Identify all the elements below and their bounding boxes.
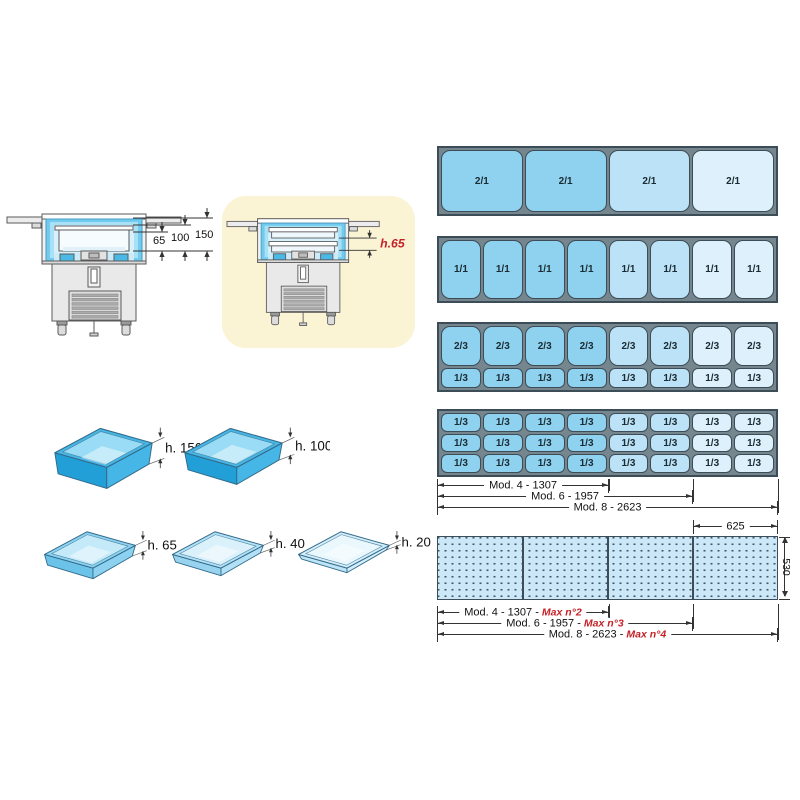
gn-pan-cell: 1/1 (483, 240, 523, 299)
gn-pan-size-label: 1/3 (663, 373, 677, 384)
gn-pan-size-label: 1/3 (538, 458, 552, 469)
gn-pan-size-label: 2/1 (475, 176, 489, 187)
dimension-arrow (438, 505, 444, 509)
pan-isometric-drawing: h. 65 (40, 521, 180, 594)
worktop-divider (522, 537, 524, 599)
gn-pan-cell: 2/1 (609, 150, 691, 212)
gn-pan-cell: 1/3 (483, 413, 523, 432)
gn-pan-size-label: 1/1 (496, 264, 510, 275)
extension-tick (693, 604, 694, 629)
dimension-text: Mod. 8 - 2623 - (549, 629, 624, 641)
worktop-depth-tick (779, 537, 790, 538)
gn-pan-size-label: 1/3 (496, 417, 510, 428)
gn-row-1-3: 1/31/31/31/31/31/31/31/31/31/31/31/31/31… (437, 409, 778, 477)
gn-pan-cell: 1/3 (441, 434, 481, 453)
gn-band: 2/12/12/12/1 (441, 150, 774, 212)
pan-height-label: h. 20 (401, 535, 430, 550)
pan-isometric-drawing: h. 40 (168, 521, 308, 594)
extension-tick (609, 604, 610, 618)
dimension-arrow (438, 610, 444, 614)
gn-pan-cell: 1/3 (441, 413, 481, 432)
gn-pan-cell: 1/3 (525, 434, 565, 453)
worktop-depth-label: 530 (780, 558, 792, 576)
gn-pan-cell: 1/3 (483, 368, 523, 388)
gn-pan-cell: 2/1 (525, 150, 607, 212)
gn-band: 2/32/32/32/32/32/32/32/3 (441, 326, 774, 366)
gn-pan-cell: 1/1 (609, 240, 649, 299)
gn-pan-cell: 1/3 (650, 454, 690, 473)
pan-isometric-drawing: h. 20 (294, 521, 434, 594)
pan-height-illustration: h. 65 (40, 521, 180, 594)
gn-pan-size-label: 1/3 (580, 373, 594, 384)
worktop-section-width-dimension: 625 (693, 521, 778, 533)
gn-pan-size-label: 1/3 (705, 417, 719, 428)
gn-pan-cell: 1/3 (609, 454, 649, 473)
extension-tick (778, 479, 779, 513)
gn-pan-cell: 1/3 (734, 368, 774, 388)
gn-pan-size-label: 2/3 (580, 341, 594, 352)
gn-pan-size-label: 2/3 (621, 341, 635, 352)
module-dimension-3: Mod. 8 - 2623 (437, 502, 778, 514)
gn-pan-size-label: 1/3 (705, 438, 719, 449)
gn-pan-cell: 1/3 (609, 368, 649, 388)
gn-row-1-1: 1/11/11/11/11/11/11/11/1 (437, 236, 778, 303)
dimension-arrow (438, 632, 444, 636)
gn-pan-cell: 2/3 (525, 326, 565, 366)
dimension-arrow (602, 483, 608, 487)
pan-height-label: h. 100 (295, 438, 330, 453)
highlight-depth-label: h.65 (380, 237, 405, 251)
gn-pan-cell: 1/3 (650, 368, 690, 388)
extension-tick (778, 604, 779, 640)
gn-pan-size-label: 1/3 (580, 458, 594, 469)
gn-pan-size-label: 1/3 (705, 458, 719, 469)
gn-pan-size-label: 1/3 (621, 373, 635, 384)
worktop-depth-tick (779, 599, 790, 600)
gn-pan-size-label: 2/3 (454, 341, 468, 352)
gn-pan-size-label: 2/3 (663, 341, 677, 352)
gn-band: 1/31/31/31/31/31/31/31/3 (441, 368, 774, 388)
gn-pan-cell: 1/1 (650, 240, 690, 299)
gn-pan-cell: 1/3 (525, 368, 565, 388)
gn-pan-size-label: 1/3 (496, 438, 510, 449)
gn-pan-size-label: 1/3 (663, 438, 677, 449)
gn-band: 1/31/31/31/31/31/31/31/3 (441, 413, 774, 432)
dimension-arrow (686, 621, 692, 625)
gn-pan-cell: 1/3 (692, 413, 732, 432)
dimension-text: Mod. 8 - 2623 (574, 502, 642, 514)
section-view-highlighted: h.65 (225, 203, 411, 329)
gn-pan-cell: 1/3 (650, 434, 690, 453)
gn-pan-size-label: 1/3 (621, 417, 635, 428)
dimension-arrow (771, 632, 777, 636)
gn-pan-size-label: 1/3 (454, 417, 468, 428)
worktop-depth-arrow-down (782, 591, 788, 597)
gn-pan-cell: 2/3 (734, 326, 774, 366)
dimension-label: Mod. 8 - 2623 (569, 502, 647, 514)
gn-pan-cell: 1/3 (734, 434, 774, 453)
worktop-depth-arrow-up (782, 537, 788, 543)
gn-pan-cell: 1/3 (525, 413, 565, 432)
gn-row-2-1: 2/12/12/12/1 (437, 146, 778, 216)
gn-pan-cell: 2/3 (441, 326, 481, 366)
gn-pan-size-label: 1/3 (663, 458, 677, 469)
gn-pan-cell: 1/3 (567, 368, 607, 388)
gn-pan-cell: 1/3 (734, 454, 774, 473)
gn-pan-size-label: 1/3 (621, 438, 635, 449)
dimension-label: 625 (721, 521, 749, 533)
worktop-divider (692, 537, 694, 599)
gn-pan-cell: 2/3 (650, 326, 690, 366)
dimension-arrow (771, 505, 777, 509)
gn-pan-size-label: 1/1 (621, 264, 635, 275)
dimension-tick (777, 520, 778, 534)
gn-pan-size-label: 2/1 (726, 176, 740, 187)
section-view-standard: 65 100 150 (5, 196, 217, 340)
gn-pan-cell: 1/3 (609, 434, 649, 453)
depth-label-100: 100 (171, 232, 189, 244)
gn-pan-size-label: 1/3 (580, 417, 594, 428)
dimension-text: 625 (726, 521, 744, 533)
gn-pan-cell: 1/3 (567, 434, 607, 453)
extension-tick (609, 479, 610, 491)
gn-pan-cell: 2/1 (692, 150, 774, 212)
gn-band: 1/11/11/11/11/11/11/11/1 (441, 240, 774, 299)
gn-pan-size-label: 1/1 (663, 264, 677, 275)
gn-pan-size-label: 1/1 (747, 264, 761, 275)
pan-isometric-drawing: h. 100 (180, 417, 330, 495)
gn-pan-size-label: 1/3 (496, 458, 510, 469)
gn-pan-size-label: 1/3 (663, 417, 677, 428)
gn-pan-cell: 1/3 (609, 413, 649, 432)
pan-height-illustration: h. 150 (50, 417, 200, 495)
dimension-max-label: Max n°4 (626, 629, 666, 641)
spec-sheet: 65 100 150 (0, 0, 800, 800)
gn-pan-cell: 1/1 (734, 240, 774, 299)
gn-pan-cell: 2/1 (441, 150, 523, 212)
gn-pan-size-label: 2/3 (496, 341, 510, 352)
dimension-arrow (438, 621, 444, 625)
gn-pan-size-label: 1/1 (538, 264, 552, 275)
gn-pan-size-label: 1/1 (580, 264, 594, 275)
gn-pan-cell: 1/3 (441, 368, 481, 388)
gn-pan-size-label: 1/3 (705, 373, 719, 384)
gn-pan-size-label: 1/3 (538, 373, 552, 384)
extension-tick (437, 481, 438, 513)
gn-pan-size-label: 1/1 (705, 264, 719, 275)
gn-band: 1/31/31/31/31/31/31/31/3 (441, 454, 774, 473)
pan-height-illustration: h. 40 (168, 521, 308, 594)
gn-pan-cell: 1/3 (692, 434, 732, 453)
pan-height-illustration: h. 100 (180, 417, 330, 495)
worktop-dimension-3: Mod. 8 - 2623 - Max n°4 (437, 629, 778, 641)
gn-pan-size-label: 2/3 (538, 341, 552, 352)
gn-pan-cell: 1/3 (483, 454, 523, 473)
gn-pan-cell: 1/3 (692, 454, 732, 473)
gn-pan-size-label: 1/3 (454, 373, 468, 384)
depth-label-150: 150 (195, 229, 213, 241)
dimension-arrow (694, 524, 700, 528)
pan-height-illustration: h. 20 (294, 521, 434, 594)
gn-pan-cell: 1/1 (525, 240, 565, 299)
gn-pan-cell: 1/3 (567, 454, 607, 473)
gn-pan-size-label: 1/3 (747, 373, 761, 384)
gn-pan-size-label: 1/3 (747, 417, 761, 428)
dimension-arrow (686, 494, 692, 498)
gn-pan-size-label: 1/3 (454, 438, 468, 449)
gn-pan-size-label: 1/3 (538, 438, 552, 449)
dimension-label: Mod. 8 - 2623 - Max n°4 (544, 629, 671, 641)
gn-pan-cell: 2/3 (483, 326, 523, 366)
dimension-arrow (438, 483, 444, 487)
dimension-arrow (771, 524, 777, 528)
gn-pan-cell: 1/3 (692, 368, 732, 388)
gn-pan-cell: 1/3 (483, 434, 523, 453)
gn-pan-cell: 1/3 (650, 413, 690, 432)
dimension-arrow (438, 494, 444, 498)
gn-pan-cell: 1/1 (567, 240, 607, 299)
gn-pan-cell: 1/3 (441, 454, 481, 473)
gn-pan-size-label: 1/3 (454, 458, 468, 469)
gn-pan-size-label: 1/3 (621, 458, 635, 469)
gn-pan-cell: 1/3 (734, 413, 774, 432)
gn-pan-size-label: 2/1 (559, 176, 573, 187)
gn-pan-size-label: 1/3 (538, 417, 552, 428)
gn-pan-cell: 1/3 (525, 454, 565, 473)
gn-pan-cell: 2/3 (692, 326, 732, 366)
extension-tick (437, 607, 438, 640)
gn-pan-size-label: 1/3 (747, 458, 761, 469)
pan-isometric-drawing: h. 150 (50, 417, 200, 495)
gn-pan-cell: 1/1 (692, 240, 732, 299)
worktop-divider (607, 537, 609, 599)
gn-pan-size-label: 2/3 (705, 341, 719, 352)
worktop-panel (437, 536, 778, 600)
gn-pan-cell: 2/3 (567, 326, 607, 366)
dimension-arrow (602, 610, 608, 614)
gn-pan-size-label: 1/3 (580, 438, 594, 449)
gn-row-2-3: 2/32/32/32/32/32/32/32/31/31/31/31/31/31… (437, 322, 778, 392)
gn-pan-size-label: 2/3 (747, 341, 761, 352)
gn-pan-cell: 1/3 (567, 413, 607, 432)
gn-pan-size-label: 1/3 (496, 373, 510, 384)
gn-band: 1/31/31/31/31/31/31/31/3 (441, 434, 774, 453)
gn-pan-size-label: 1/1 (454, 264, 468, 275)
gn-pan-cell: 2/3 (609, 326, 649, 366)
gn-pan-size-label: 2/1 (642, 176, 656, 187)
depth-label-65: 65 (153, 235, 165, 247)
extension-tick (693, 479, 694, 502)
gn-pan-size-label: 1/3 (747, 438, 761, 449)
gn-pan-cell: 1/1 (441, 240, 481, 299)
